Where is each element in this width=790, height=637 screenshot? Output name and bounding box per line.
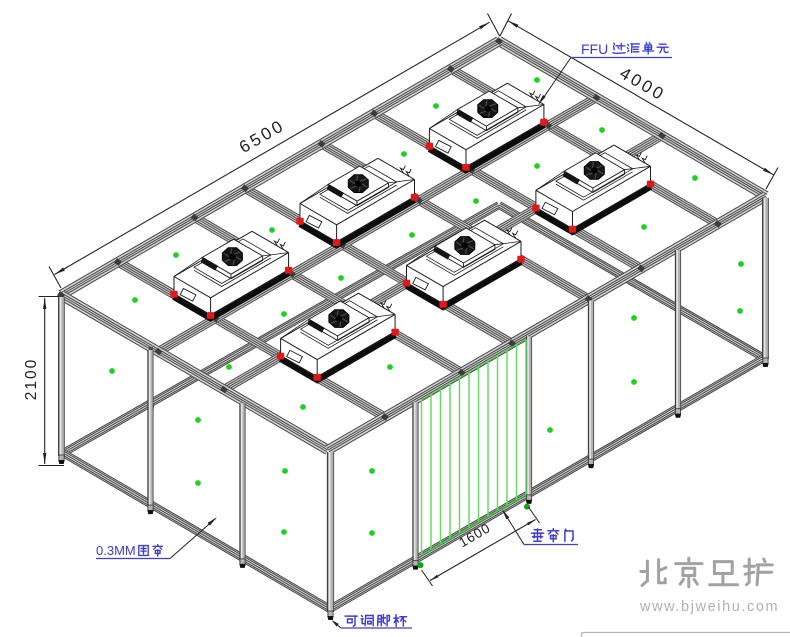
svg-text:0.3MM: 0.3MM [96, 543, 136, 558]
svg-text:6500: 6500 [236, 116, 289, 157]
svg-text:2100: 2100 [23, 358, 40, 400]
svg-text:FFU: FFU [581, 41, 608, 57]
svg-text:www.bjweihu.com: www.bjweihu.com [639, 599, 779, 615]
